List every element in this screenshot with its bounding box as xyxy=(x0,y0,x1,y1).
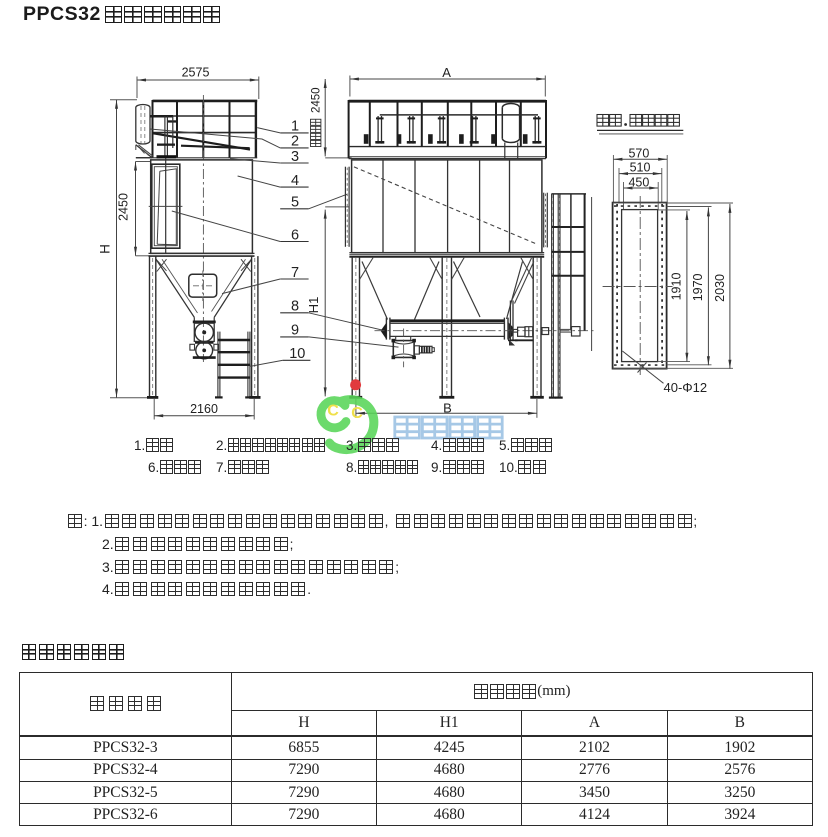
svg-text:1970: 1970 xyxy=(691,273,705,301)
svg-text:510: 510 xyxy=(630,161,651,175)
svg-text:5: 5 xyxy=(291,195,299,211)
svg-text:H1: H1 xyxy=(306,297,321,314)
svg-text:2575: 2575 xyxy=(182,66,210,80)
svg-text:H: H xyxy=(98,244,113,254)
svg-text:C: C xyxy=(351,405,363,422)
svg-text:2450: 2450 xyxy=(117,193,131,221)
svg-text:4: 4 xyxy=(291,173,299,189)
svg-text:570: 570 xyxy=(628,147,649,161)
svg-text:6: 6 xyxy=(291,227,299,243)
svg-text:9: 9 xyxy=(291,323,299,339)
svg-text:1910: 1910 xyxy=(670,273,684,301)
svg-text:2160: 2160 xyxy=(190,402,218,416)
svg-text:2030: 2030 xyxy=(713,274,727,302)
svg-text:A: A xyxy=(442,65,451,80)
svg-text:7: 7 xyxy=(291,265,299,281)
svg-text:2450: 2450 xyxy=(311,87,323,113)
svg-text:1: 1 xyxy=(291,119,299,135)
svg-text:40-Φ12: 40-Φ12 xyxy=(664,380,708,395)
svg-text:10: 10 xyxy=(289,346,305,362)
svg-text:C: C xyxy=(327,403,339,420)
svg-text:3: 3 xyxy=(291,149,299,165)
svg-text:2: 2 xyxy=(291,134,299,150)
svg-text:8: 8 xyxy=(291,299,299,315)
